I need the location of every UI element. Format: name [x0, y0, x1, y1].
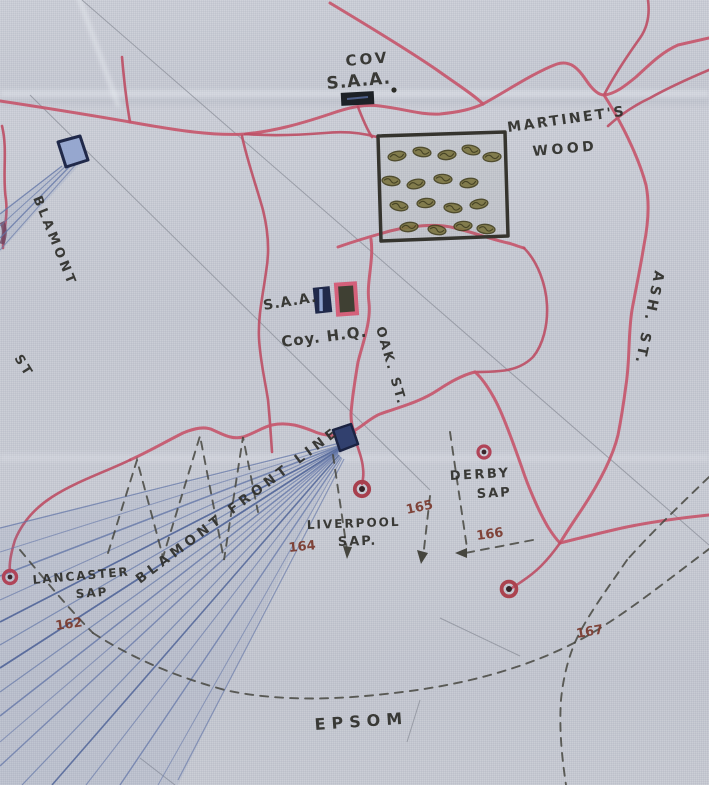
coy-hq-rects — [313, 283, 357, 314]
label-liverpool-sap: SAP. — [338, 534, 378, 550]
label-derby-sap: SAP — [476, 485, 512, 502]
label-cov-saa: S.A.A. — [326, 68, 392, 94]
road-right-loop — [475, 248, 547, 372]
number-165: 165 — [405, 498, 435, 518]
road-top-right-branch — [604, 0, 649, 95]
label-coy-hq: Coy. H.Q. — [280, 323, 368, 351]
label-blamont: BLAMONT — [29, 194, 79, 289]
label-derby: DERBY — [449, 466, 510, 484]
road-coy-hq-street — [242, 136, 272, 452]
label-blamont-st: ST — [11, 352, 37, 381]
label-martinets: MARTINET'S — [506, 103, 627, 136]
dashed-derby-arrow-line — [465, 540, 533, 553]
sap-head-167 — [502, 582, 517, 597]
label-epsom: EPSOM — [314, 709, 409, 734]
label-wood: WOOD — [532, 138, 598, 160]
road-main-lateral — [130, 104, 483, 134]
label-lancaster-sap: SAP — [75, 585, 109, 601]
sap-line-167 — [512, 543, 560, 588]
mine-fan-large — [0, 424, 358, 785]
number-166: 166 — [475, 525, 504, 544]
label-oak-st: OAK. ST. — [372, 325, 409, 407]
road-after-junction-east — [560, 515, 709, 543]
label-saa-hq: S.A.A. — [262, 290, 318, 314]
road-junction-stub-up — [122, 57, 130, 122]
dashed-derby-leg — [450, 432, 467, 548]
label-cov: COV — [345, 48, 390, 70]
road-top-left — [0, 101, 130, 122]
number-167: 167 — [575, 622, 604, 641]
dashed-long-diagonal — [560, 560, 627, 785]
trench-map-canvas: COV S.A.A. MARTINET'S WOOD BLAMONT ST S.… — [0, 0, 709, 785]
sap-head-derby — [478, 446, 490, 458]
hq-rect-red — [336, 283, 357, 314]
number-164: 164 — [288, 538, 317, 556]
road-wood-approach — [245, 132, 377, 137]
road-ash-street — [560, 95, 648, 543]
road-upper-right — [483, 38, 709, 104]
wood-square — [378, 132, 508, 241]
map-drawing: COV S.A.A. MARTINET'S WOOD BLAMONT ST S.… — [0, 0, 709, 785]
saa-period-dot — [391, 87, 396, 92]
charge-head-rect-small — [58, 136, 88, 167]
label-liverpool: LIVERPOOL — [307, 515, 401, 532]
